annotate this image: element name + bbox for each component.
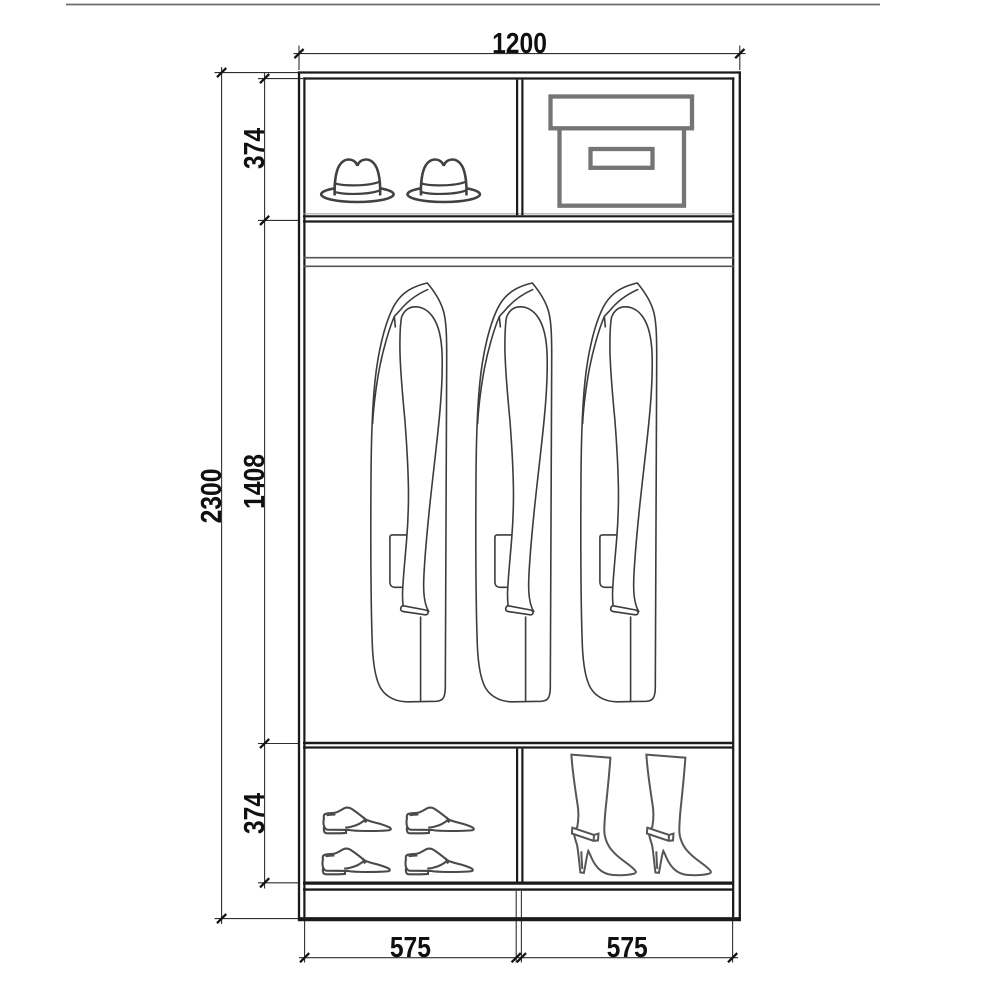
svg-text:374: 374 xyxy=(238,128,270,169)
svg-text:374: 374 xyxy=(238,793,270,834)
svg-text:1408: 1408 xyxy=(238,454,270,509)
svg-text:575: 575 xyxy=(390,931,431,963)
svg-text:2300: 2300 xyxy=(195,469,227,524)
svg-text:1200: 1200 xyxy=(492,27,547,59)
svg-text:575: 575 xyxy=(607,931,648,963)
